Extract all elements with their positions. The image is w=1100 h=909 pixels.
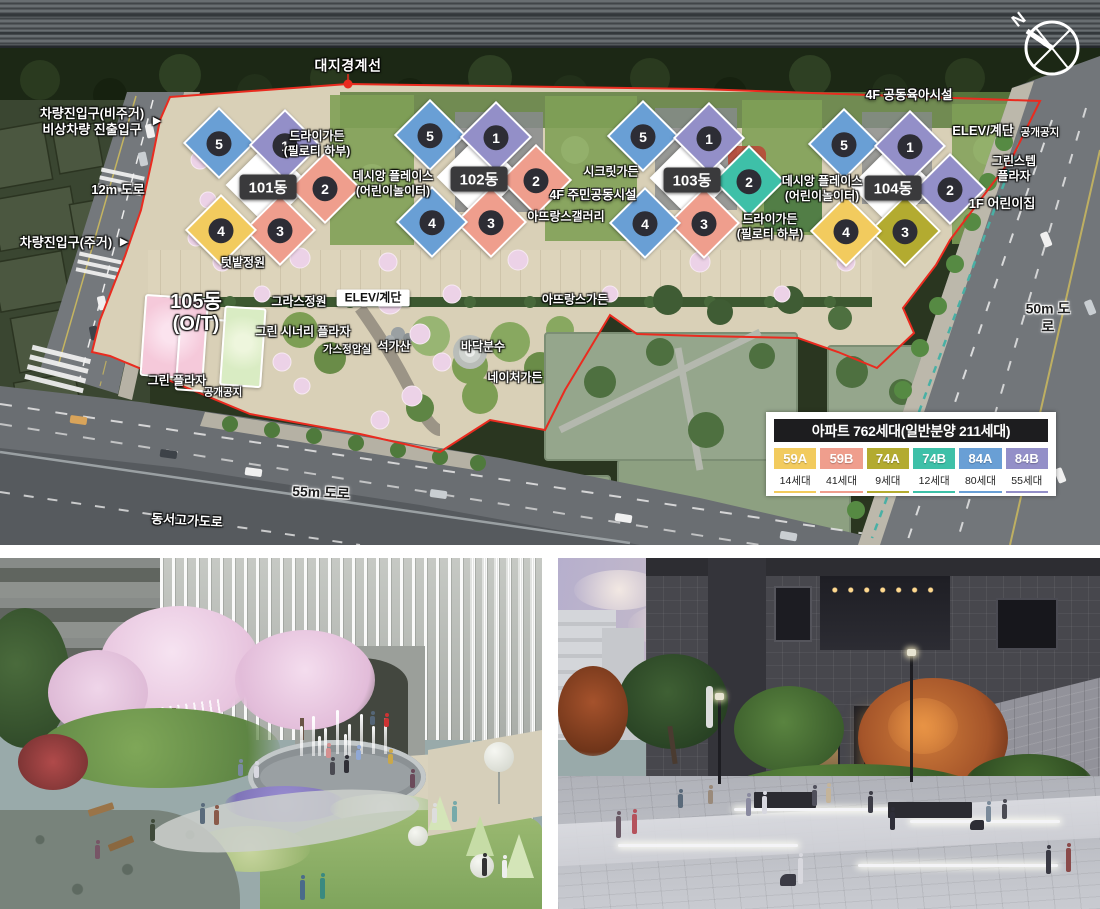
person-figure [326,748,331,758]
desian-place-1-label: 데시앙 플레이스 (어린이놀이터) [353,169,434,199]
legend-item-74B: 74B12세대 [913,448,955,493]
person-head [96,840,100,844]
road-12m-label: 12m 도로 [91,182,145,198]
person-head [453,801,457,805]
person-figure [254,766,259,778]
topiary-cone [466,816,494,856]
person-figure [356,750,361,760]
person-head [483,853,487,857]
building-name-badge: 104동 [865,176,922,201]
elev-stairs-1-label: ELEV/계단 [952,123,1014,139]
person-head [201,803,205,807]
vehicle-entry-nonres-label: 차량진입구(비주거) 비상차량 진출입구 [40,106,144,139]
person-head [869,791,873,795]
person-head [987,801,991,805]
compass-n-label: N [1008,8,1029,31]
person-figure [388,754,393,764]
unit-number: 3 [268,218,293,243]
unit-number: 5 [418,123,443,148]
floor-fountain-label: 바닥분수 [461,340,505,355]
person-head [1003,799,1007,803]
legend-title: 아파트 762세대(일반분양 211세대) [774,419,1048,442]
secret-garden-label: 시크릿가든 [583,165,638,180]
person-head [151,819,155,823]
atelier-garden-label: 아뜨랑스가든 [542,293,608,308]
upper-window [996,598,1058,650]
legend-count: 12세대 [913,473,955,493]
atelier-gallery-label: 아뜨랑스갤러리 [527,210,604,225]
person-head [389,749,393,753]
person-head [301,875,305,879]
sphere-sculpture [484,742,514,772]
person-figure [798,858,803,884]
unit-number: 2 [524,168,549,193]
open-space-2-label: 공개공지 [204,386,243,399]
greenstep-plaza-label: 그린스텝 플라자 [992,154,1036,184]
person-figure [482,858,487,876]
legend-count: 9세대 [867,473,909,493]
person-head [813,785,817,789]
person-head [371,711,375,715]
legend-swatch: 59A [774,448,816,469]
person-head [1067,843,1071,847]
unit-number: 3 [479,210,504,235]
legend-swatch: 59B [820,448,862,469]
person-figure [452,806,457,822]
vehicle-entry-res-label: 차량진입구(주거) [20,235,112,251]
person-figure [812,790,817,806]
white-sculpture [706,686,713,728]
person-figure [1046,850,1051,874]
dry-garden-1-label: 드라이가든 (필로티 하부) [284,129,351,159]
person-figure [826,788,831,803]
green-plaza-label: 그린 플라자 [148,374,207,389]
unit-number: 4 [633,211,658,236]
elev-stairs-2-label: ELEV/계단 [337,290,410,307]
unit-number: 5 [207,131,232,156]
person-figure [868,796,873,813]
person-figure [502,860,507,878]
person-head [357,745,361,749]
compass: N [1000,4,1100,94]
unit-number: 5 [631,124,656,149]
person-figure [150,824,155,841]
person-figure [238,764,243,776]
legend-swatch: 74A [867,448,909,469]
unit-number: 2 [313,176,338,201]
rock-mountain-label: 석가산 [377,340,410,355]
person-head [891,807,895,811]
unit-number: 2 [938,177,963,202]
legend-item-74A: 74A9세대 [867,448,909,493]
lamp-post [910,656,913,782]
person-figure [746,798,751,816]
dry-garden-2-label: 드라이가든 (필로티 하부) [737,212,804,242]
legend-items: 59A14세대59B41세대74A9세대74B12세대84A80세대84B55세… [774,448,1048,493]
person-head [411,769,415,773]
vehicle-entry-res-arrow: ▶ [120,236,128,250]
unit-number: 5 [832,132,857,157]
vehicle-entry-nonres-arrow: ▶ [153,115,161,129]
legend-swatch: 84A [959,448,1001,469]
bench-planter [888,802,972,818]
person-head [321,873,325,877]
legend-swatch: 84B [1006,448,1048,469]
road-50m-label: 50m 도로 [1022,301,1074,336]
road-55m-label: 55m 도로 [292,483,351,503]
person-figure [214,810,219,825]
gas-station-label: 가스정압실 [323,343,371,356]
red-maple-tree [558,666,628,756]
person-head [239,759,243,763]
person-head [433,803,437,807]
person-head [503,855,507,859]
person-figure [384,718,389,727]
legend-item-59A: 59A14세대 [774,448,816,493]
person-head [827,783,831,787]
person-head [345,755,349,759]
unit-number: 3 [893,219,918,244]
person-head [763,791,767,795]
person-figure [890,812,895,830]
tree-trunk [300,718,304,740]
person-head [327,743,331,747]
person-head [331,757,335,761]
nature-garden-label: 네이처가든 [487,371,542,386]
unit-number: 4 [420,210,445,235]
ceiling-lights [828,582,942,598]
person-figure [95,845,100,859]
green-tree [734,686,844,772]
plaza-fountain-render [0,558,542,909]
person-head [385,713,389,717]
building-105-label: 105동 (O/T) [170,291,222,335]
person-figure [632,814,637,834]
legend-item-59B: 59B41세대 [820,448,862,493]
person-head [679,789,683,793]
building-105-wing-green [219,305,266,388]
unit-number: 1 [484,125,509,150]
building-name-badge: 103동 [664,168,721,193]
person-figure [320,878,325,899]
topiary-cone [504,834,534,878]
ground-light-strip [910,820,1060,823]
ground-light-strip [734,808,904,811]
upper-window [774,586,812,642]
community-4f-label: 4F 주민공동시설 [549,188,636,204]
person-figure [330,762,335,775]
open-space-1-label: 공개공지 [1021,126,1060,139]
person-figure [986,806,991,822]
unit-number: 1 [898,134,923,159]
unit-number: 2 [737,169,762,194]
person-figure [616,816,621,838]
ground-light-strip [618,844,798,847]
legend-count: 41세대 [820,473,862,493]
legend-count: 14세대 [774,473,816,493]
autumn-tree-highlight [888,698,958,754]
person-figure [708,790,713,804]
unit-type-legend: 아파트 762세대(일반분양 211세대) 59A14세대59B41세대74A9… [766,412,1056,496]
ground-light-strip [858,864,1058,867]
legend-item-84A: 84A80세대 [959,448,1001,493]
unit-number: 4 [834,219,859,244]
person-figure [762,796,767,814]
person-head [633,809,637,813]
person-figure [678,794,683,808]
stroller [780,874,796,886]
person-head [215,805,219,809]
person-head [1047,845,1051,849]
boundary-line-label: 대지경계선 [315,57,382,75]
person-figure [432,808,437,823]
green-scenery-plaza-label: 그린 시너리 플라자 [256,325,351,340]
grass-garden-label: 그라스정원 [271,295,326,310]
legend-item-84B: 84B55세대 [1006,448,1048,493]
stroller [970,820,984,830]
building-name-badge: 102동 [451,167,508,192]
person-figure [200,808,205,824]
brochure-page: N 아파트 762세대(일반분양 211세대) 59A14세대59B41세대74… [0,0,1100,909]
person-figure [344,760,349,773]
lamp-post [718,700,721,784]
person-head [709,785,713,789]
unit-number: 4 [209,218,234,243]
red-flower-shrub [18,734,88,790]
entrance-dusk-render [558,558,1100,909]
person-figure [1002,804,1007,819]
unit-number: 1 [697,126,722,151]
unit-number: 3 [692,211,717,236]
person-figure [1066,848,1071,872]
cherry-tree [235,630,375,730]
childcare-1f-label: 1F 어린이집 [969,196,1036,212]
legend-count: 80세대 [959,473,1001,493]
sphere-sculpture [408,826,428,846]
site-plan: N 아파트 762세대(일반분양 211세대) 59A14세대59B41세대74… [0,0,1100,545]
person-figure [370,716,375,725]
person-head [747,793,751,797]
person-head [799,853,803,857]
person-figure [410,774,415,788]
ball-pole [498,770,500,804]
person-head [617,811,621,815]
daycare-4f-label: 4F 공동육아시설 [865,88,952,104]
legend-count: 55세대 [1006,473,1048,493]
building-name-badge: 101동 [240,175,297,200]
desian-place-2-label: 데시앙 플레이스 (어린이놀이터) [782,174,863,204]
legend-swatch: 74B [913,448,955,469]
person-head [255,761,259,765]
person-figure [300,880,305,900]
vegetable-garden-label: 텃밭정원 [221,256,265,271]
